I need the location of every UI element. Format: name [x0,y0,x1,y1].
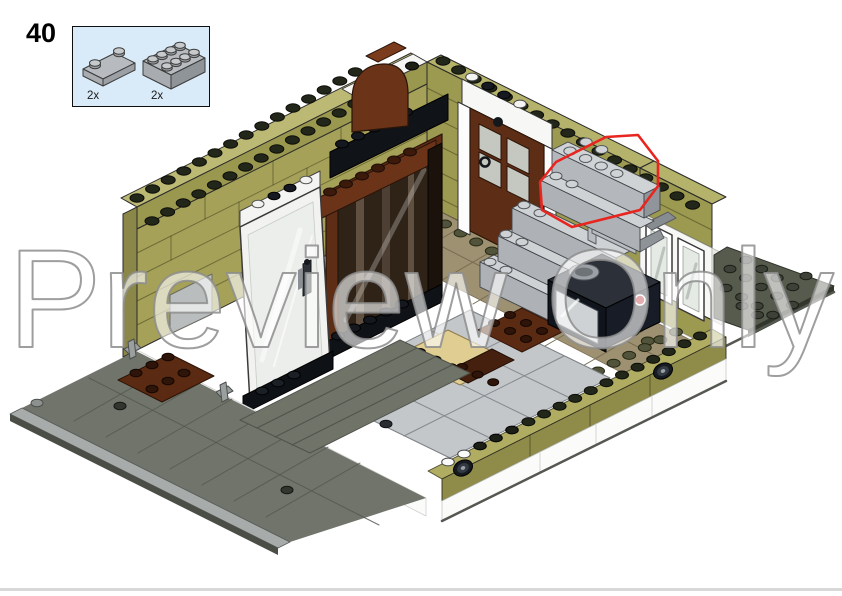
watermark-text: Preview Only [8,220,834,377]
step-illustration: Preview Only [0,0,842,596]
door-hinge [493,117,503,127]
wardrobe-arch [352,64,408,132]
page-footer-rule [0,588,842,591]
instruction-page: 40 [0,0,842,596]
